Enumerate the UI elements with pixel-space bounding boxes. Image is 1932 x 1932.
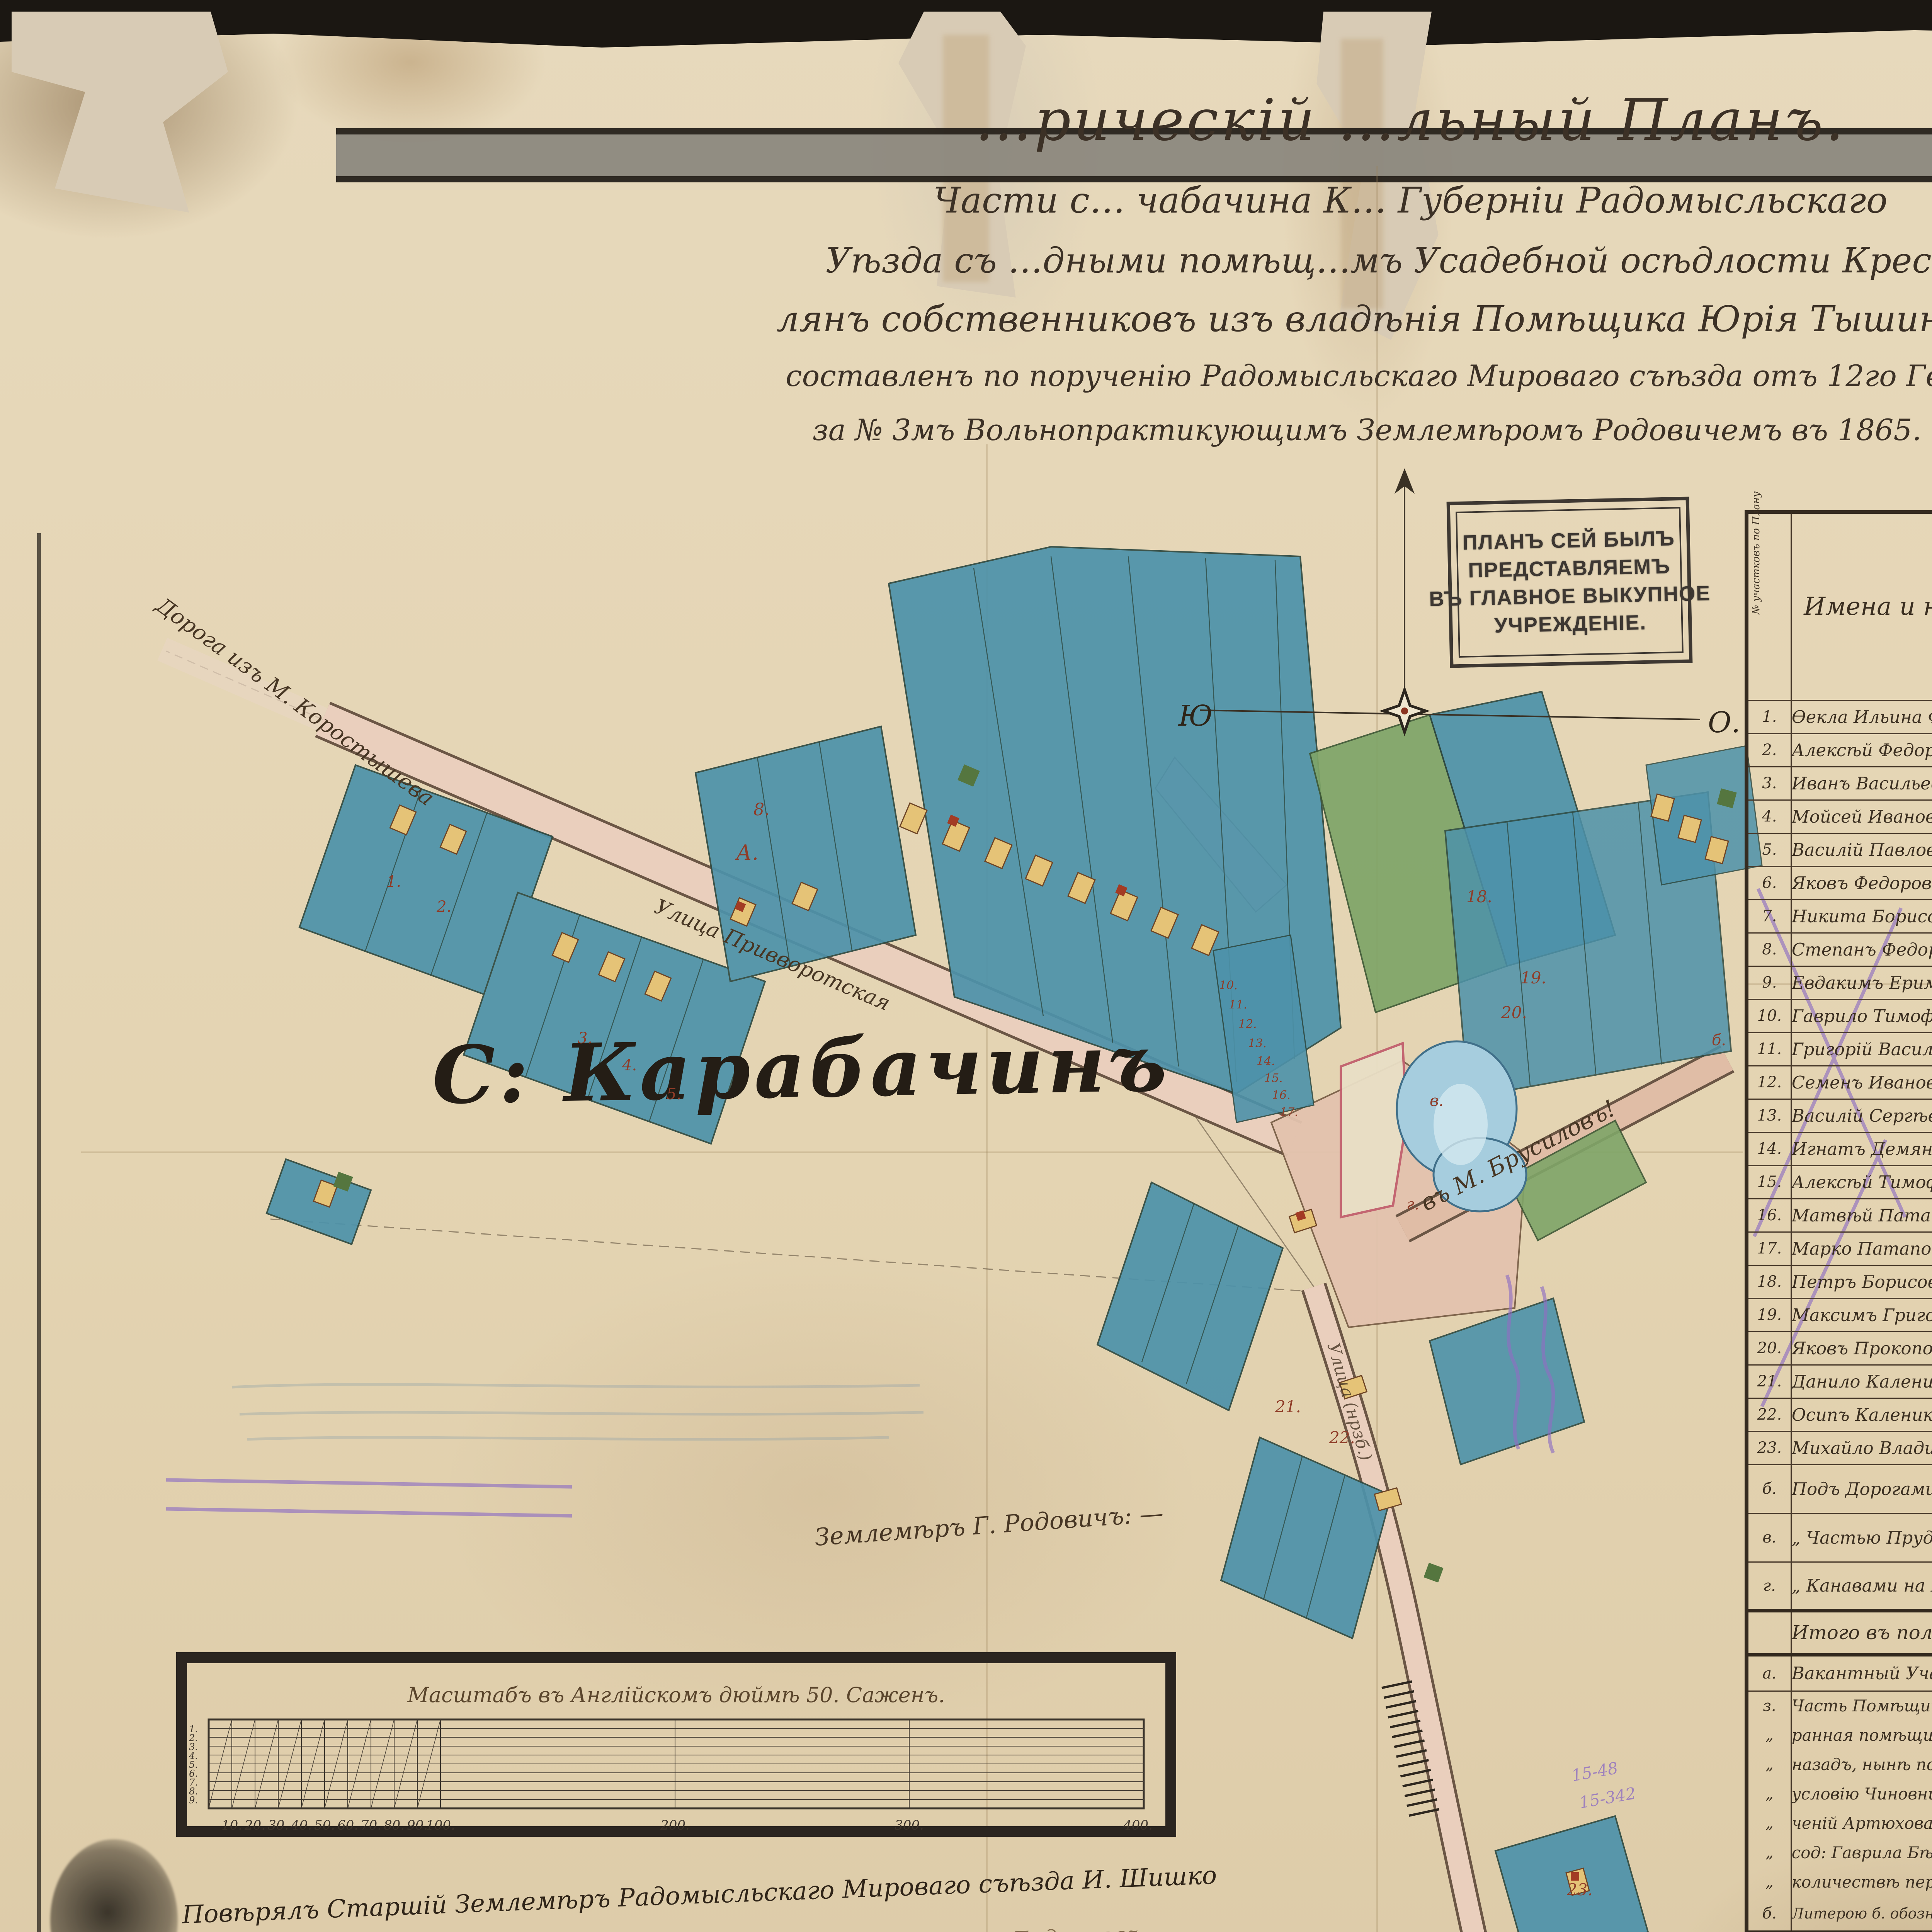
scale-tick: 80. xyxy=(384,1818,405,1833)
table-cell: условію Чиновника особыхъ пору- xyxy=(1791,1779,1932,1808)
table-cell: Ѳекла Ильина Фандралюкъ xyxy=(1791,700,1932,733)
table-row: 11.Григорій Васильевъ Сидоренко„1195.„24… xyxy=(1747,1032,1932,1066)
scale-tick: 10. xyxy=(221,1818,242,1833)
table-row: б.Литерою б. обозначеннаго на Планѣ„215.… xyxy=(1747,1896,1932,1932)
svg-text:в.: в. xyxy=(1430,1092,1444,1110)
table-cell: Яковъ Федоровъ Сидоренко xyxy=(1791,866,1932,900)
table-cell: Семенъ Ивановъ Фандралюкъ. xyxy=(1791,1066,1932,1099)
table-cell: 1. xyxy=(1747,700,1791,733)
table-cell: Алексѣй Федоровъ Костіюченко xyxy=(1791,733,1932,767)
table-cell: Яковъ Прокоповъ Бѣленки. xyxy=(1791,1332,1932,1365)
scale-tick: 70. xyxy=(361,1818,381,1833)
table-cell: Часть Помѣщичьяго огорода отоб- xyxy=(1791,1691,1932,1720)
stamp-line1: ПЛАНЪ СЕЙ БЫЛЪ xyxy=(1462,526,1675,555)
stamp-line3: ВЪ ГЛАВНОЕ ВЫКУПНОЕ xyxy=(1429,581,1711,611)
table-cell: 20. xyxy=(1747,1332,1791,1365)
table-cell: „ Канавами на Границахъ xyxy=(1791,1562,1932,1611)
table-row: 17.Марко Патаповъ Бабіенко.„1680.„„„1680… xyxy=(1747,1232,1932,1265)
scale-tick: 60. xyxy=(337,1818,358,1833)
table-cell: Подъ Дорогами xyxy=(1791,1464,1932,1513)
table-cell: ранная помѣщикомъ 12 лѣтъ xyxy=(1791,1720,1932,1750)
svg-text:3.: 3. xyxy=(578,1029,592,1047)
col-header-names: Имена и названія Хозяевъ и Угодій. xyxy=(1791,512,1932,700)
svg-text:г.: г. xyxy=(1406,1196,1419,1213)
table-row: 22.Осипъ Калениковъ Дударенко.„1500.„167… xyxy=(1747,1398,1932,1431)
svg-text:21.: 21. xyxy=(1275,1397,1301,1416)
table-cell: Григорій Васильевъ Сидоренко xyxy=(1791,1032,1932,1066)
table-cell: Данило Калениковъ Дударенко. xyxy=(1791,1365,1932,1398)
table-cell: 23. xyxy=(1747,1431,1791,1464)
svg-text:13.: 13. xyxy=(1248,1037,1267,1050)
table-cell: Евдакимъ Еримовъ Стеценко. xyxy=(1791,966,1932,999)
scale-row-labels: 1.2.3.4.5.6.7.8.9. xyxy=(189,1724,198,1806)
table-cell: „ xyxy=(1747,1750,1791,1779)
svg-text:14.: 14. xyxy=(1257,1054,1275,1068)
table-row: 12.Семенъ Ивановъ Фандралюкъ.„1108.„289.… xyxy=(1747,1066,1932,1099)
land-register-table: № участковъ по Плану Имена и названія Хо… xyxy=(1745,510,1932,1932)
table-cell: г. xyxy=(1747,1562,1791,1611)
table-cell: ченій Артюхова и Крестьянина xyxy=(1791,1808,1932,1838)
scale-tick: 400. xyxy=(1123,1818,1153,1833)
table-row: 7.Никита Борисовъ Дударенко„1486.„„„1486… xyxy=(1747,900,1932,933)
table-row: а.Вакантный Участокъ„1378.„„„1378.„„ xyxy=(1747,1655,1932,1691)
svg-text:4.: 4. xyxy=(622,1056,637,1074)
village-name: С: Карабачинъ xyxy=(432,1017,1172,1122)
table-row: 4.Мойсей Ивановъ Фандралюкъ„1382.„„„1382… xyxy=(1747,800,1932,833)
table-row: 20.Яковъ Прокоповъ Бѣленки.„1676.„120.„1… xyxy=(1747,1332,1932,1365)
table-cell: 12. xyxy=(1747,1066,1791,1099)
scale-tick: 200. xyxy=(660,1818,690,1833)
table-cell: Василій Павловъ Бортничукъ xyxy=(1791,833,1932,866)
scale-row-label: 9. xyxy=(189,1795,198,1806)
svg-text:17.: 17. xyxy=(1280,1105,1298,1119)
table-cell: Петръ Борисовъ Дударенко. xyxy=(1791,1265,1932,1298)
table-cell: „ xyxy=(1747,1808,1791,1838)
table-row: г.„ Канавами на Границахъ„„„„„„„83. xyxy=(1747,1562,1932,1611)
table-cell: Итого въ пользованіи Крестьянъ. xyxy=(1791,1611,1932,1655)
compass-label-west: Ю xyxy=(1178,699,1213,733)
scale-tick: 40. xyxy=(291,1818,312,1833)
svg-text:б.: б. xyxy=(1712,1031,1726,1049)
svg-text:23.: 23. xyxy=(1566,1880,1593,1899)
svg-text:12.: 12. xyxy=(1238,1017,1257,1031)
table-cell: 2. xyxy=(1747,733,1791,767)
table-cell xyxy=(1747,1611,1791,1655)
table-row: 13.Василій Сергѣевъ Рыбчукъ.„1100.„448.„… xyxy=(1747,1099,1932,1132)
svg-text:16.: 16. xyxy=(1272,1088,1291,1102)
table-cell: 16. xyxy=(1747,1199,1791,1232)
table-row: 1.Ѳекла Ильина Фандралюкъ„1660.„„„1660.„… xyxy=(1747,700,1932,733)
table-row: 16.Матвѣй Патаповъ Сабіенко.„1681.„„„168… xyxy=(1747,1199,1932,1232)
table-row: „назадъ, нынѣ по добровольному„„„„„„„„ xyxy=(1747,1750,1932,1779)
table-row: з.Часть Помѣщичьяго огорода отоб-„—„„„—„… xyxy=(1747,1691,1932,1720)
table-cell: назадъ, нынѣ по добровольному xyxy=(1791,1750,1932,1779)
table-row: 6.Яковъ Федоровъ Сидоренко„1394.„229.„16… xyxy=(1747,866,1932,900)
scale-tick: 20. xyxy=(244,1818,265,1833)
table-cell: „ Частью Пруда. xyxy=(1791,1513,1932,1562)
table-cell: 15. xyxy=(1747,1165,1791,1199)
table-cell: Матвѣй Патаповъ Сабіенко. xyxy=(1791,1199,1932,1232)
table-cell: 17. xyxy=(1747,1232,1791,1265)
table-row: „ченій Артюхова и Крестьянина„„„„„„„„ xyxy=(1747,1808,1932,1838)
table-cell: 9. xyxy=(1747,966,1791,999)
table-row: Итого въ пользованіи Крестьянъ.14.1649.1… xyxy=(1747,1611,1932,1655)
purple-note-2: 15-342 xyxy=(1578,1784,1637,1812)
scanned-plan-sheet: …рическій …льный Планъ. Части с… чабачин… xyxy=(0,0,1932,1932)
col-header-plot-no: № участковъ по Плану xyxy=(1750,599,1762,614)
table-cell: 3. xyxy=(1747,767,1791,800)
svg-text:22.: 22. xyxy=(1329,1428,1355,1447)
svg-text:8.: 8. xyxy=(753,800,770,820)
table-cell: Игнатъ Демяновъ Рыбчукъ. xyxy=(1791,1132,1932,1165)
table-row: 9.Евдакимъ Еримовъ Стеценко.„1281.„„„128… xyxy=(1747,966,1932,999)
table-cell: 4. xyxy=(1747,800,1791,833)
table-cell: сод: Гаврила Бѣленко въ равномъ xyxy=(1791,1838,1932,1867)
svg-text:2.: 2. xyxy=(436,898,451,916)
table-cell: 8. xyxy=(1747,933,1791,966)
table-cell: Михайло Владимировъ Мартиненко xyxy=(1791,1431,1932,1464)
table-cell: 7. xyxy=(1747,900,1791,933)
scale-tick: 90. xyxy=(407,1818,428,1833)
table-row: 21.Данило Калениковъ Дударенко.„1500.„18… xyxy=(1747,1365,1932,1398)
table-cell: 22. xyxy=(1747,1398,1791,1431)
table-cell: 14. xyxy=(1747,1132,1791,1165)
scale-tick: 300. xyxy=(895,1818,924,1833)
scale-tick: 50. xyxy=(314,1818,335,1833)
table-cell: 13. xyxy=(1747,1099,1791,1132)
svg-text:15.: 15. xyxy=(1264,1071,1283,1085)
scale-title: Масштабъ въ Англійскомъ дюймѣ 50. Саженъ… xyxy=(407,1683,945,1707)
table-cell: „ xyxy=(1747,1779,1791,1808)
purple-note-1: 15-48 xyxy=(1570,1759,1619,1785)
table-cell: б. xyxy=(1747,1464,1791,1513)
svg-text:1.: 1. xyxy=(386,873,401,891)
table-cell: Вакантный Участокъ xyxy=(1791,1655,1932,1691)
table-row: 10.Гаврило Тимофѣевъ Бѣленко.„1900.„286.… xyxy=(1747,999,1932,1032)
svg-text:А.: А. xyxy=(735,840,759,865)
table-cell: 19. xyxy=(1747,1298,1791,1332)
table-cell: 18. xyxy=(1747,1265,1791,1298)
svg-text:11.: 11. xyxy=(1229,998,1247,1012)
table-row: 18.Петръ Борисовъ Дударенко.1.373.„384.1… xyxy=(1747,1265,1932,1298)
faint-blue-scribbles xyxy=(232,1384,923,1439)
table-cell: 11. xyxy=(1747,1032,1791,1066)
surveyor-signature: Землемѣръ Г. Родовичъ: — xyxy=(814,1499,1164,1551)
table-cell: 21. xyxy=(1747,1365,1791,1398)
table-cell: Мойсей Ивановъ Фандралюкъ xyxy=(1791,800,1932,833)
table-row: „ранная помѣщикомъ 12 лѣтъ„„„„„„„„ xyxy=(1747,1720,1932,1750)
table-cell: Максимъ Григорьевъ Сидоренко. xyxy=(1791,1298,1932,1332)
table-cell: 10. xyxy=(1747,999,1791,1032)
table-cell: „ xyxy=(1747,1720,1791,1750)
compass-label-east: О. xyxy=(1708,706,1740,739)
table-cell: Марко Патаповъ Бабіенко. xyxy=(1791,1232,1932,1265)
road-label-korostyshev: Дорога изъ М. Коростышева xyxy=(150,592,439,811)
svg-text:10.: 10. xyxy=(1219,979,1238,992)
table-row: „количествѣ перемѣнена подъ„„„„„„„„ xyxy=(1747,1867,1932,1896)
table-cell: Литерою б. обозначеннаго на Планѣ xyxy=(1791,1896,1932,1932)
table-cell: а. xyxy=(1747,1655,1791,1691)
table-cell: Никита Борисовъ Дударенко xyxy=(1791,900,1932,933)
table-row: 23.Михайло Владимировъ Мартиненко„1816.„… xyxy=(1747,1431,1932,1464)
table-row: 19.Максимъ Григорьевъ Сидоренко.„1785.„1… xyxy=(1747,1298,1932,1332)
table-cell: „ xyxy=(1747,1838,1791,1867)
svg-text:20.: 20. xyxy=(1501,1003,1527,1022)
table-cell: в. xyxy=(1747,1513,1791,1562)
stamp-line4: УЧРЕЖДЕНІЕ. xyxy=(1494,611,1647,638)
scale-tick: 100. xyxy=(426,1818,455,1833)
table-row: 3.Иванъ Васильевъ Карпенко„1483.„„„1483.… xyxy=(1747,767,1932,800)
table-row: 5.Василій Павловъ Бортничукъ„1480.„92.„1… xyxy=(1747,833,1932,866)
stamp-line2: ПРЕДСТАВЛЯЕМЪ xyxy=(1468,554,1671,583)
svg-text:5.: 5. xyxy=(667,1085,681,1103)
table-row: 15.Алексѣй Тимофѣевъ Стеценко.„1095.„255… xyxy=(1747,1165,1932,1199)
table-cell: 6. xyxy=(1747,866,1791,900)
table-cell: Василій Сергѣевъ Рыбчукъ. xyxy=(1791,1099,1932,1132)
table-cell: Иванъ Васильевъ Карпенко xyxy=(1791,767,1932,800)
table-row: б.Подъ Дорогами„„„„„„1.243. xyxy=(1747,1464,1932,1513)
table-cell: Гаврило Тимофѣевъ Бѣленко. xyxy=(1791,999,1932,1032)
table-row: „сод: Гаврила Бѣленко въ равномъ„„„„„„„„ xyxy=(1747,1838,1932,1867)
table-cell: количествѣ перемѣнена подъ xyxy=(1791,1867,1932,1896)
table-row: 8.Степанъ Федоровъ Коденскій„1394.„88.„1… xyxy=(1747,933,1932,966)
table-cell: 5. xyxy=(1747,833,1791,866)
table-cell: Алексѣй Тимофѣевъ Стеценко. xyxy=(1791,1165,1932,1199)
table-cell: б. xyxy=(1747,1896,1791,1932)
svg-text:18.: 18. xyxy=(1466,887,1492,906)
village-plan-drawing: Ю О. Дорога изъ М. Коростышева Улица При… xyxy=(0,0,1932,1932)
table-cell: Степанъ Федоровъ Коденскій xyxy=(1791,933,1932,966)
table-cell: Осипъ Калениковъ Дударенко. xyxy=(1791,1398,1932,1431)
svg-text:19.: 19. xyxy=(1520,968,1546,987)
table-row: 14.Игнатъ Демяновъ Рыбчукъ.„990.„290.„12… xyxy=(1747,1132,1932,1165)
table-cell: „ xyxy=(1747,1867,1791,1896)
table-row: в.„ Частью Пруда.„„„„„„„648. xyxy=(1747,1513,1932,1562)
table-cell: з. xyxy=(1747,1691,1791,1720)
redemption-office-stamp: ПЛАНЪ СЕЙ БЫЛЪ ПРЕДСТАВЛЯЕМЪ ВЪ ГЛАВНОЕ … xyxy=(1447,497,1693,668)
table-row: 2.Алексѣй Федоровъ Костіюченко„1890.„„„1… xyxy=(1747,733,1932,767)
scale-tick: 30. xyxy=(268,1818,289,1833)
table-row: „условію Чиновника особыхъ пору-„„„„„„„„ xyxy=(1747,1779,1932,1808)
scale-bar: Масштабъ въ Англійскомъ дюймѣ 50. Саженъ… xyxy=(182,1658,1171,1833)
